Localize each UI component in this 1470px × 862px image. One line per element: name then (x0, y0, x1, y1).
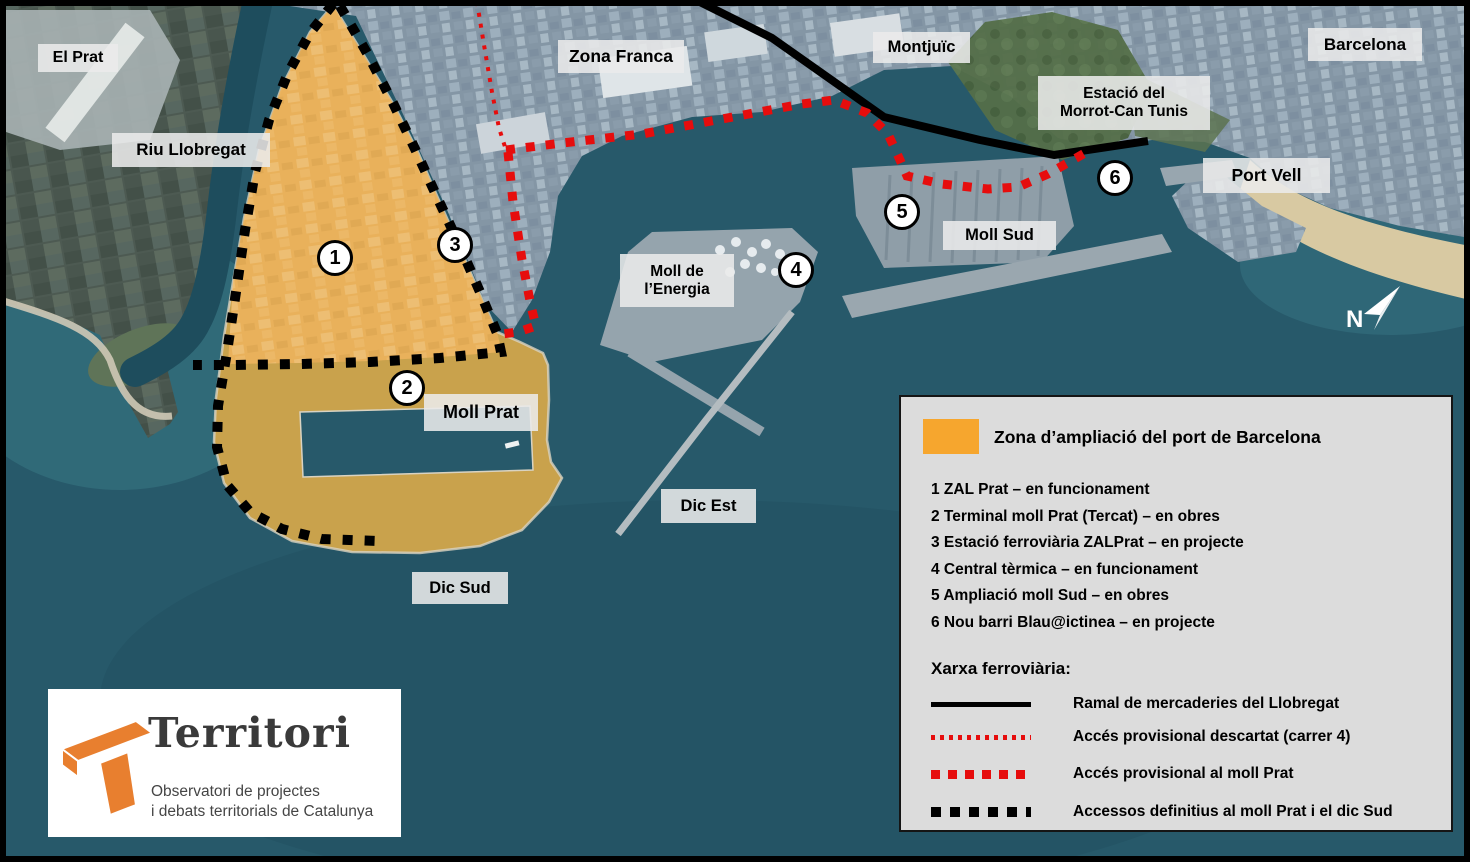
legend-row-ramal: Ramal de mercaderies del Llobregat (931, 694, 1431, 714)
legend-title: Zona d’ampliació del port de Barcelona (994, 427, 1321, 448)
logo-title: Territori (148, 709, 351, 757)
label-text: Montjuïc (888, 38, 956, 57)
legend-item: 3 Estació ferroviària ZALPrat – en proje… (931, 530, 1244, 557)
dotted-red-line-sample (931, 727, 1031, 747)
port-barcelona-map: El Prat Riu Llobregat Zona Franca Montju… (0, 0, 1470, 862)
marker-number: 6 (1109, 167, 1120, 190)
label-text: El Prat (53, 49, 104, 67)
label-text: Moll de (650, 263, 703, 281)
marker-3-estacio-zalprat: 3 (437, 227, 473, 263)
legend-row-definitius: Accessos definitius al moll Prat i el di… (931, 802, 1431, 822)
label-text: Barcelona (1324, 35, 1406, 55)
dashed-black-line-sample (931, 802, 1031, 822)
legend-item: 1 ZAL Prat – en funcionament (931, 477, 1244, 504)
label-text: Moll Sud (965, 226, 1034, 245)
label-barcelona: Barcelona (1308, 28, 1422, 61)
label-text: Riu Llobregat (136, 140, 246, 160)
legend-items: 1 ZAL Prat – en funcionament 2 Terminal … (931, 477, 1244, 636)
legend-panel: Zona d’ampliació del port de Barcelona 1… (899, 395, 1453, 832)
label-moll-sud: Moll Sud (943, 221, 1056, 250)
legend-row-descartat: Accés provisional descartat (carrer 4) (931, 727, 1431, 747)
marker-number: 1 (329, 247, 340, 270)
marker-number: 4 (790, 259, 801, 282)
label-text: Dic Est (681, 497, 737, 516)
territori-t-icon (56, 701, 156, 831)
legend-line-label: Accés provisional descartat (carrer 4) (1073, 728, 1350, 746)
label-text: Dic Sud (429, 579, 490, 598)
north-label: N (1346, 306, 1363, 334)
label-dic-est: Dic Est (661, 489, 756, 523)
label-dic-sud: Dic Sud (412, 572, 508, 604)
label-port-vell: Port Vell (1203, 158, 1330, 193)
marker-number: 3 (449, 234, 460, 257)
label-estacio-morrot: Estació del Morrot-Can Tunis (1038, 76, 1210, 130)
legend-item: 5 Ampliació moll Sud – en obres (931, 583, 1244, 610)
label-riu-llobregat: Riu Llobregat (112, 133, 270, 167)
legend-line-label: Ramal de mercaderies del Llobregat (1073, 695, 1339, 713)
label-moll-energia: Moll de l’Energia (620, 254, 734, 307)
logo-subtitle-line: Observatori de projectes (151, 782, 373, 802)
logo-subtitle: Observatori de projectes i debats territ… (151, 782, 373, 822)
legend-item: 6 Nou barri Blau@ictinea – en projecte (931, 610, 1244, 637)
label-text: Morrot-Can Tunis (1060, 103, 1188, 121)
dashed-red-line-sample (931, 764, 1031, 784)
solid-black-line-sample (931, 694, 1031, 714)
legend-line-label: Accés provisional al moll Prat (1073, 765, 1294, 783)
marker-1-zal-prat: 1 (317, 240, 353, 276)
label-el-prat: El Prat (38, 44, 118, 72)
marker-4-central-termica: 4 (778, 252, 814, 288)
marker-5-ampliacio-moll-sud: 5 (884, 194, 920, 230)
label-text: Port Vell (1231, 165, 1301, 185)
north-indicator: N (1338, 282, 1408, 340)
marker-6-blau-ictinea: 6 (1097, 160, 1133, 196)
marker-2-terminal-moll-prat: 2 (389, 370, 425, 406)
label-text: Zona Franca (569, 46, 673, 66)
label-text: Moll Prat (443, 402, 519, 423)
label-text: Estació del (1083, 85, 1165, 103)
network-title: Xarxa ferroviària: (931, 659, 1071, 679)
legend-item: 4 Central tèrmica – en funcionament (931, 557, 1244, 584)
legend-line-label: Accessos definitius al moll Prat i el di… (1073, 803, 1393, 821)
territori-logo: Territori Observatori de projectes i deb… (48, 689, 401, 837)
marker-number: 2 (401, 377, 412, 400)
legend-item: 2 Terminal moll Prat (Tercat) – en obres (931, 504, 1244, 531)
label-montjuic: Montjuïc (873, 32, 970, 63)
logo-subtitle-line: i debats territorials de Catalunya (151, 802, 373, 822)
legend-row-provisional: Accés provisional al moll Prat (931, 764, 1431, 784)
label-zona-franca: Zona Franca (558, 40, 684, 73)
marker-number: 5 (896, 201, 907, 224)
label-text: l’Energia (644, 281, 709, 299)
label-moll-prat: Moll Prat (424, 394, 538, 431)
expansion-zone-swatch (923, 419, 979, 454)
